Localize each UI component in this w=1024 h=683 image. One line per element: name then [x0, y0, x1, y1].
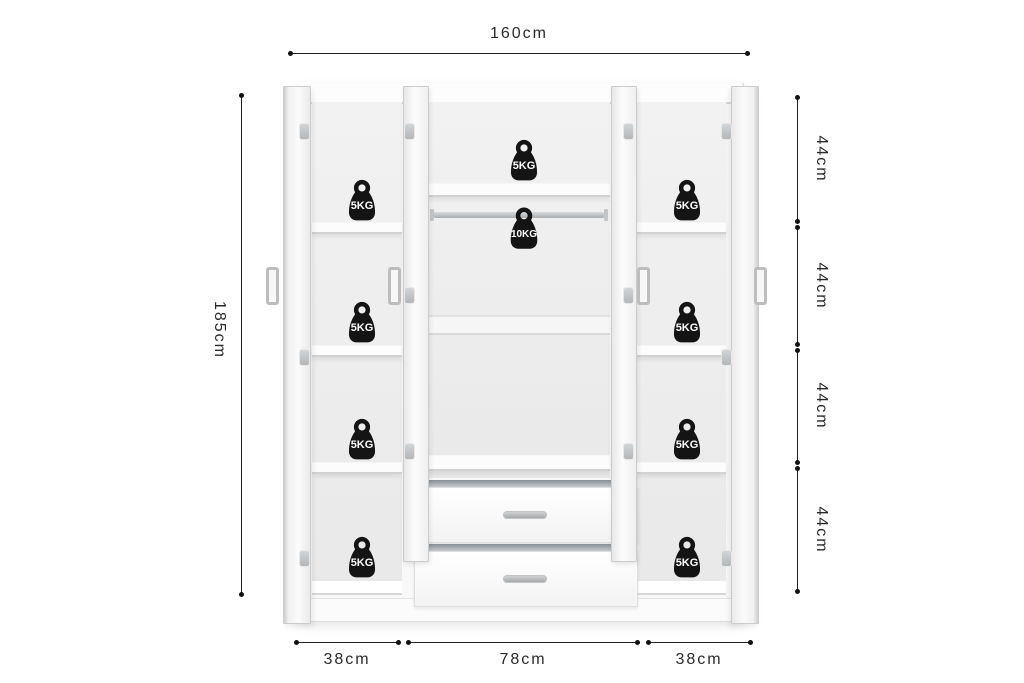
shelf — [636, 345, 726, 357]
weight-label: 5KG — [344, 557, 380, 569]
weight-icon: 5KG — [344, 179, 380, 223]
dimension-label-center-width: 78cm — [499, 651, 546, 669]
hinge — [405, 444, 414, 459]
drawer-handle — [503, 511, 547, 519]
hinge — [722, 124, 731, 139]
hinge — [405, 124, 414, 139]
dimension-line-center-width — [408, 642, 638, 643]
top-shelf — [428, 183, 610, 197]
hinge — [300, 124, 309, 139]
rail-bracket — [604, 209, 608, 221]
drawer-top-board — [428, 455, 610, 471]
hinge — [722, 350, 731, 365]
drawer-opening — [416, 480, 634, 487]
shelf — [636, 222, 726, 234]
door-handle — [637, 267, 650, 305]
hinge — [624, 444, 633, 459]
weight-label: 10KG — [504, 229, 544, 240]
door-handle — [754, 267, 767, 305]
weight-icon: 5KG — [669, 536, 705, 580]
dimension-label-section-3: 44cm — [812, 382, 830, 429]
cabinet-floor — [312, 580, 402, 595]
weight-label: 5KG — [669, 557, 705, 569]
right-outer-door — [731, 86, 759, 624]
weight-label: 5KG — [344, 439, 380, 451]
weight-label: 5KG — [669, 200, 705, 212]
hinge — [405, 288, 414, 303]
dimension-label-section-4: 44cm — [812, 506, 830, 553]
shelf — [312, 462, 402, 474]
weight-icon: 5KG — [344, 536, 380, 580]
dimension-line-section-3 — [797, 350, 798, 463]
hinge — [624, 288, 633, 303]
dimension-label-left-width: 38cm — [323, 651, 370, 669]
weight-label: 5KG — [344, 200, 380, 212]
rail-bracket — [430, 209, 434, 221]
drawer-opening — [416, 544, 634, 551]
weight-icon: 5KG — [669, 301, 705, 345]
dimension-line-section-1 — [797, 97, 798, 222]
weight-icon: 5KG — [344, 418, 380, 462]
door-handle — [266, 267, 279, 305]
dimension-label-total-height: 185cm — [210, 301, 228, 359]
shelf — [312, 222, 402, 234]
weight-label: 5KG — [669, 322, 705, 334]
hinge — [722, 551, 731, 566]
weight-icon: 5KG — [344, 301, 380, 345]
weight-icon: 10KG — [504, 207, 544, 251]
weight-label: 5KG — [506, 160, 542, 172]
dimension-label-total-width: 160cm — [490, 25, 548, 43]
back-crossbar — [428, 315, 610, 335]
weight-label: 5KG — [669, 439, 705, 451]
weight-label: 5KG — [344, 322, 380, 334]
weight-icon: 5KG — [506, 139, 542, 183]
dimension-line-total-width — [290, 53, 748, 54]
door-handle — [388, 267, 401, 305]
hinge — [300, 551, 309, 566]
dimension-label-section-1: 44cm — [812, 135, 830, 182]
weight-icon: 5KG — [669, 179, 705, 223]
dimension-line-section-2 — [797, 227, 798, 345]
hinge — [624, 124, 633, 139]
shelf — [636, 462, 726, 474]
dimension-line-total-height — [241, 95, 242, 595]
cabinet-floor — [636, 580, 726, 595]
middle-right-door — [611, 86, 637, 562]
middle-left-door — [403, 86, 429, 562]
dimension-label-right-width: 38cm — [675, 651, 722, 669]
drawer-handle — [503, 575, 547, 583]
dimension-line-left-width — [296, 642, 399, 643]
weight-icon: 5KG — [669, 418, 705, 462]
dimension-line-section-4 — [797, 468, 798, 592]
wardrobe-dimension-diagram: 5KG 5KG 5KG 5KG 5KG 10KG 5KG 5KG 5KG 5KG… — [0, 0, 1024, 683]
dimension-label-section-2: 44cm — [812, 262, 830, 309]
hinge — [300, 350, 309, 365]
shelf — [312, 345, 402, 357]
wardrobe-top-board — [298, 83, 742, 104]
dimension-line-right-width — [648, 642, 751, 643]
